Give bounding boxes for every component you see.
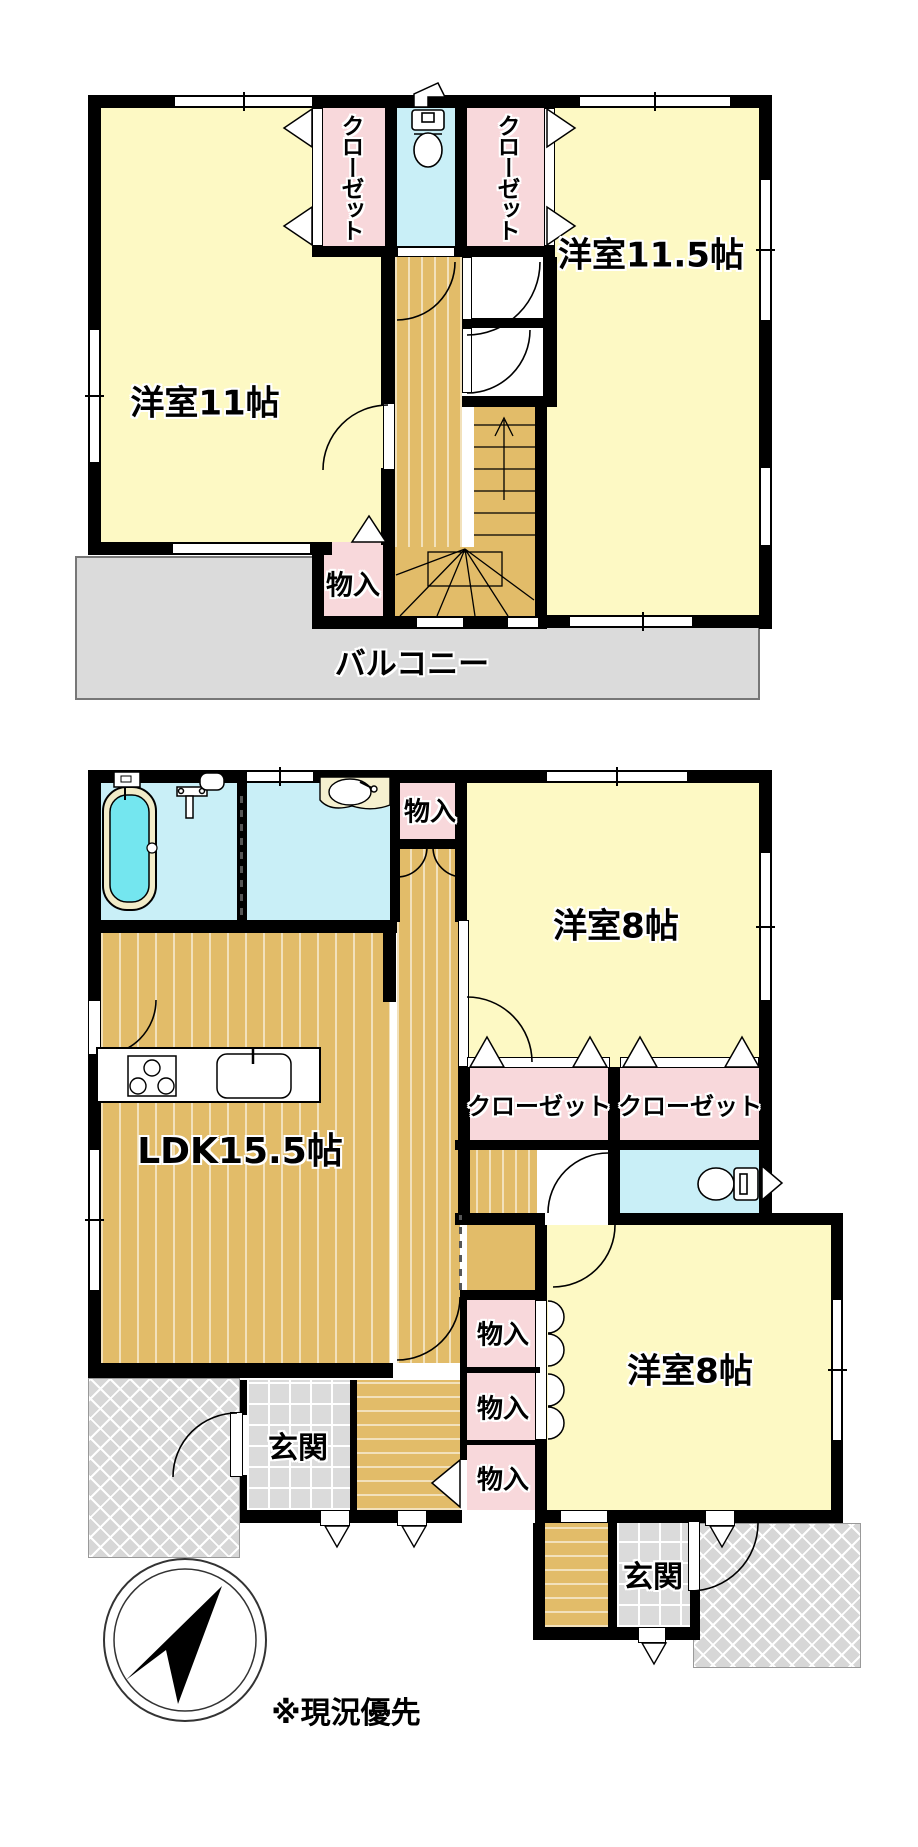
door-gap — [560, 1510, 608, 1523]
wall — [397, 839, 463, 849]
window-tick — [654, 92, 656, 111]
wall — [88, 1055, 101, 1150]
wall — [831, 1440, 843, 1510]
window — [173, 542, 310, 555]
door-leaf — [462, 257, 472, 320]
wall — [383, 920, 396, 1002]
label-storage-1f-3: 物入 — [477, 1460, 529, 1497]
window-tick — [279, 767, 281, 786]
wall — [455, 1140, 772, 1150]
label-ldk: LDK15.5帖 — [137, 1122, 343, 1174]
wall — [383, 542, 395, 629]
window — [759, 468, 772, 545]
window-tick — [243, 92, 245, 111]
floor-plan: 洋室11帖 洋室11.5帖 クローゼット クローゼット 物入 バルコニー 物入 … — [0, 0, 918, 1847]
wall — [460, 1300, 467, 1460]
open-boundary — [459, 1215, 462, 1290]
label-room8-lower: 洋室8帖 — [627, 1344, 753, 1393]
label-storage-1f-top: 物入 — [404, 792, 456, 829]
walls — [0, 0, 918, 1847]
window-tick — [85, 1219, 104, 1221]
wall — [381, 246, 395, 406]
window-tick — [616, 767, 618, 786]
closet-door — [312, 108, 323, 246]
label-room11: 洋室11帖 — [130, 376, 279, 425]
door-leaf — [230, 1412, 243, 1477]
door-leaf — [688, 1521, 700, 1591]
window — [570, 615, 692, 628]
window-tick — [756, 249, 775, 251]
window — [508, 616, 538, 629]
door-gap — [88, 1000, 101, 1055]
vent — [705, 1510, 735, 1526]
wall — [455, 107, 467, 246]
wall — [690, 1590, 700, 1640]
wall — [543, 257, 557, 407]
wall — [385, 107, 397, 246]
door-leaf — [383, 403, 395, 470]
wall — [460, 1290, 542, 1300]
wall — [759, 95, 772, 629]
label-closet-1f-right: クローゼット — [618, 1087, 762, 1122]
room-door-opening — [458, 920, 469, 1067]
label-storage-1f-2: 物入 — [477, 1389, 529, 1426]
wall — [88, 770, 101, 1000]
closet-door — [620, 1057, 759, 1068]
wall — [240, 1475, 247, 1510]
label-room11-5: 洋室11.5帖 — [558, 228, 744, 277]
label-genkan-second: 玄関 — [623, 1552, 683, 1596]
wall — [460, 1440, 540, 1445]
wall — [381, 468, 395, 545]
label-balcony: バルコニー — [335, 639, 489, 684]
closet-door — [467, 1057, 610, 1068]
wall — [533, 1523, 545, 1640]
wall — [88, 1363, 393, 1378]
label-storage-2f: 物入 — [326, 564, 380, 603]
wall — [608, 1213, 843, 1225]
closet-door — [544, 108, 555, 246]
vent — [397, 1510, 427, 1526]
wall — [535, 396, 547, 629]
wall — [455, 1213, 545, 1225]
wall — [608, 1523, 617, 1627]
label-closet-2f-right: クローゼット — [489, 114, 523, 240]
vent — [320, 1510, 350, 1526]
wall — [535, 1225, 547, 1300]
wall — [390, 782, 400, 922]
window-tick — [85, 395, 104, 397]
wall — [455, 782, 467, 922]
window-tick — [642, 612, 644, 631]
wall — [240, 1380, 247, 1415]
note-genkyo-yusen: ※現況優先 — [271, 1688, 420, 1732]
wall — [312, 542, 324, 629]
label-closet-1f-left: クローゼット — [467, 1087, 611, 1122]
wall — [88, 95, 101, 555]
wall — [533, 1627, 700, 1640]
wall — [831, 1225, 843, 1300]
wall — [535, 1440, 547, 1510]
door-leaf — [462, 328, 472, 393]
wall — [462, 318, 552, 328]
sliding-door — [240, 790, 243, 915]
wall — [460, 1367, 540, 1373]
label-genkan-main: 玄関 — [268, 1423, 328, 1467]
wall — [350, 1380, 357, 1510]
label-room8-upper: 洋室8帖 — [553, 899, 679, 948]
window-tick — [756, 926, 775, 928]
label-closet-2f-left: クローゼット — [333, 114, 367, 240]
window-tick — [828, 1369, 847, 1371]
wall — [240, 1510, 462, 1523]
vent — [638, 1627, 666, 1643]
toilet-door — [397, 247, 455, 257]
window — [417, 616, 463, 629]
label-storage-1f-1: 物入 — [477, 1315, 529, 1352]
